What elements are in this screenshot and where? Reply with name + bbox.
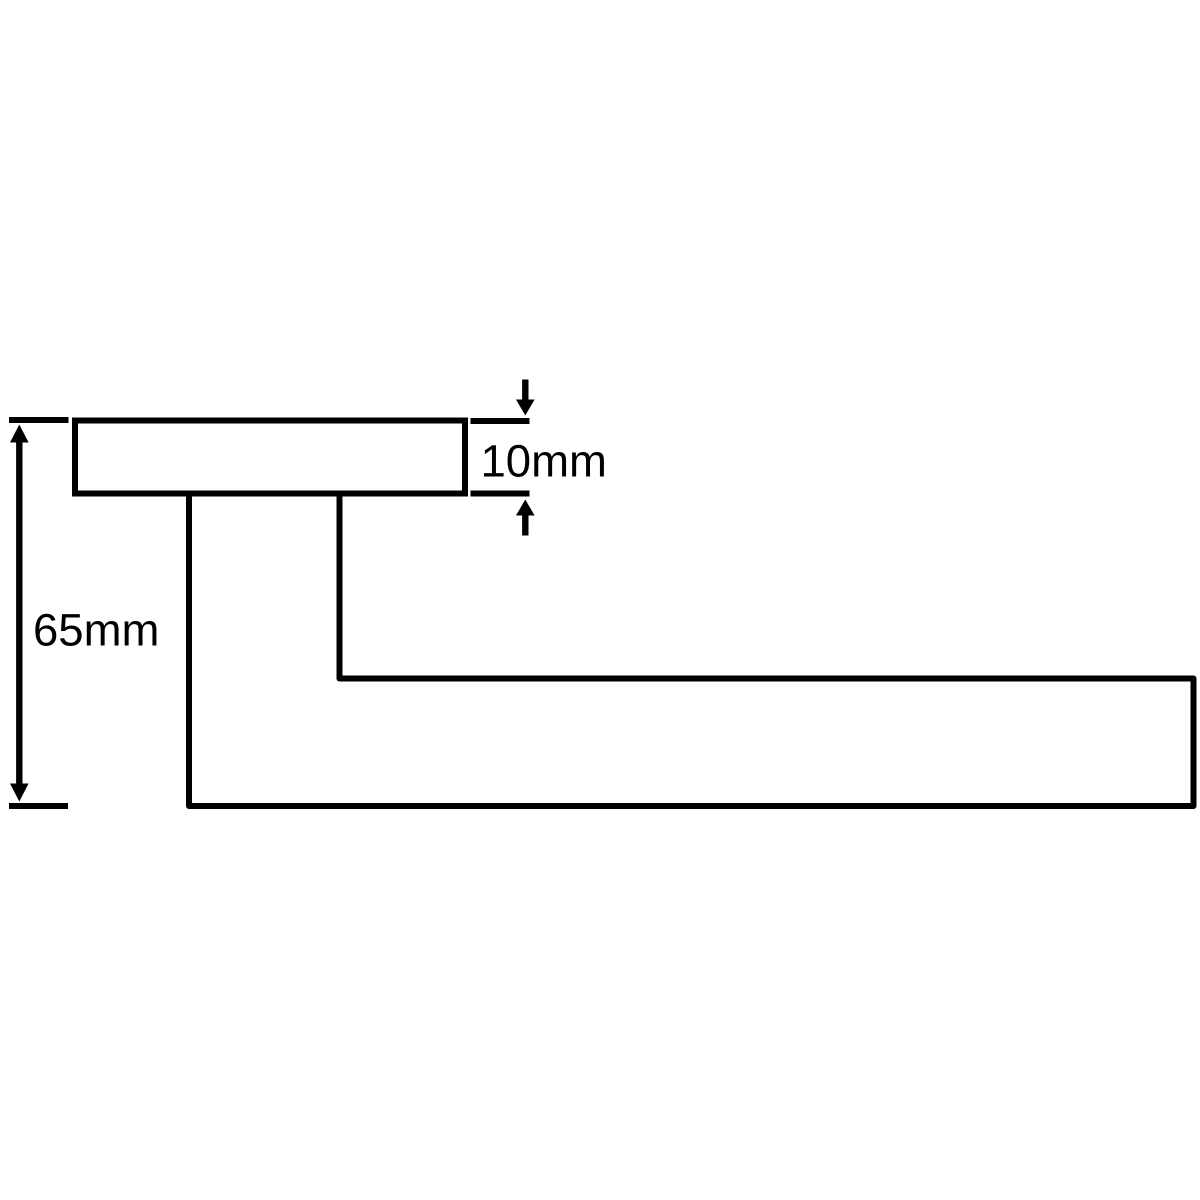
svg-text:10mm: 10mm (481, 436, 607, 487)
svg-text:65mm: 65mm (33, 605, 159, 656)
